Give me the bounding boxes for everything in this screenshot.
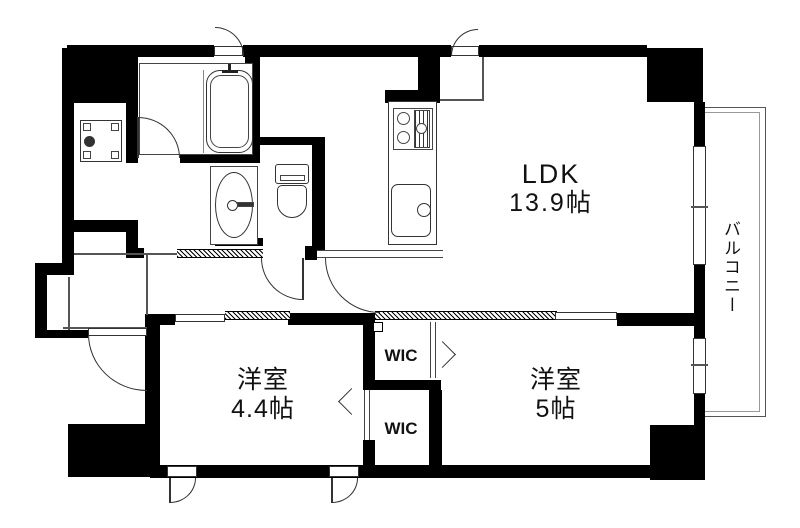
bed2-sliding-leaf [555,312,617,320]
wall-hall-bottom-b [288,313,375,325]
wall-right-a [694,102,705,150]
floor-plan: LDK 13.9帖 洋室 4.4帖 洋室 5帖 WIC WIC バルコニー [0,0,800,528]
ldk-door-track [317,250,443,258]
stove-burner-2 [397,131,410,144]
wall-toilet-right [312,137,325,252]
ldk-size: 13.9帖 [451,190,651,218]
entry-tataki-line-h [440,99,484,101]
bedroom-large-size: 5帖 [456,395,656,424]
ldk-label: LDK 13.9帖 [451,160,651,217]
vanity-faucet-handle [237,202,254,207]
washer-pan-tab-tr [111,123,119,131]
wall-top-a [67,45,214,57]
window-a-swing-arc [170,478,196,503]
entry-tataki-line-v [482,57,484,100]
toilet-door-swing-arc [261,258,303,300]
toilet-tank [275,164,309,184]
wall-left [62,48,74,275]
bedroom-small-size: 4.4帖 [163,395,363,424]
bedroom-small-label: 洋室 4.4帖 [163,366,363,424]
balcony-window-bed2-mullion [691,364,708,366]
wall-ldk-bed2-divider [617,313,697,326]
balcony-window-bed2 [693,338,706,394]
washer-drain-icon [84,136,95,147]
toilet-door-leaf [302,258,304,300]
washer-pan-tab-br [111,151,119,159]
sink-faucet-icon [417,203,431,217]
ldk-name: LDK [451,160,651,190]
bath-door-leaf [137,117,139,158]
wall-bottom-left-block [68,424,150,477]
window-leaf-b [329,466,359,477]
window-a-leaf-line [169,478,171,503]
wall-right-b [694,261,705,341]
bathtub-inner [210,75,249,148]
wall-kitchen-pillar [418,57,440,103]
toilet-bowl [277,185,307,218]
ldk-door-swing-arc [325,258,380,313]
balcony-window-ldk-mullion [691,206,708,208]
wall-top-right-block [647,48,703,102]
wall-hall-post [305,246,317,260]
bed1-sliding-leaf [175,314,225,322]
window-b-swing-arc [332,478,358,503]
wall-bottom [150,465,703,478]
entry-door-swing-arc [451,29,478,56]
wic-lower-door [364,390,370,440]
sliding-track-bed2 [375,311,557,320]
bedroom-large-label: 洋室 5帖 [456,366,656,424]
wic-upper-label: WIC [371,346,431,366]
bedroom-small-name: 洋室 [163,366,363,395]
wall-top-b [243,45,451,57]
wall-bottom-right-block [650,425,705,480]
wall-right-c [694,390,705,427]
wic-corner-notch [373,322,383,332]
wall-entry-jut-left [35,263,47,338]
wic-lower-label: WIC [371,419,431,439]
bath-faucet-stem [228,64,231,73]
wall-wic-middle [363,380,441,390]
genkan-side-line [68,277,70,330]
bedroom-large-name: 洋室 [456,366,656,395]
top-door1-swing-arc [215,27,244,56]
wall-top-c [479,45,647,57]
washer-pan-tab-bl [83,151,91,159]
window-b-leaf-line [331,478,333,503]
wall-laundry-bottom [74,220,138,232]
sliding-track-bed1 [225,311,290,320]
window-leaf-a [167,466,197,477]
toilet-tank-lid [280,175,305,181]
genkan-door-swing-arc [88,334,147,391]
hall-floor-line [74,253,177,255]
washer-pan-tab-tl [83,123,91,131]
shower-divider-line [203,70,204,153]
balcony-label: バルコニー [719,212,743,322]
sliding-track-washroom [177,249,263,258]
stove-grill-knob [416,123,427,134]
stove-burner-1 [397,112,410,125]
hall-corner-line [146,255,148,315]
wall-entry-jut-bottom [35,330,88,338]
